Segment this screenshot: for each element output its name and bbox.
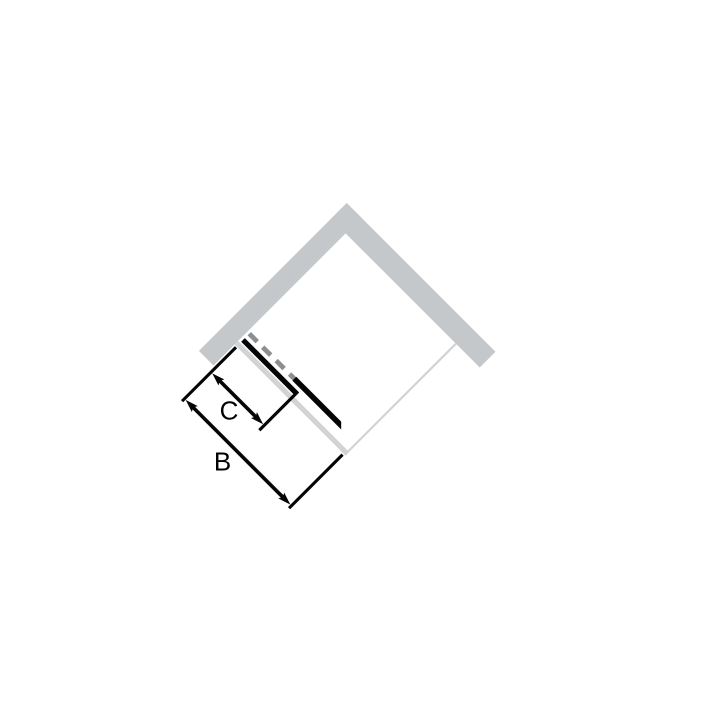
svg-text:C: C (220, 396, 239, 426)
svg-text:B: B (214, 446, 231, 476)
